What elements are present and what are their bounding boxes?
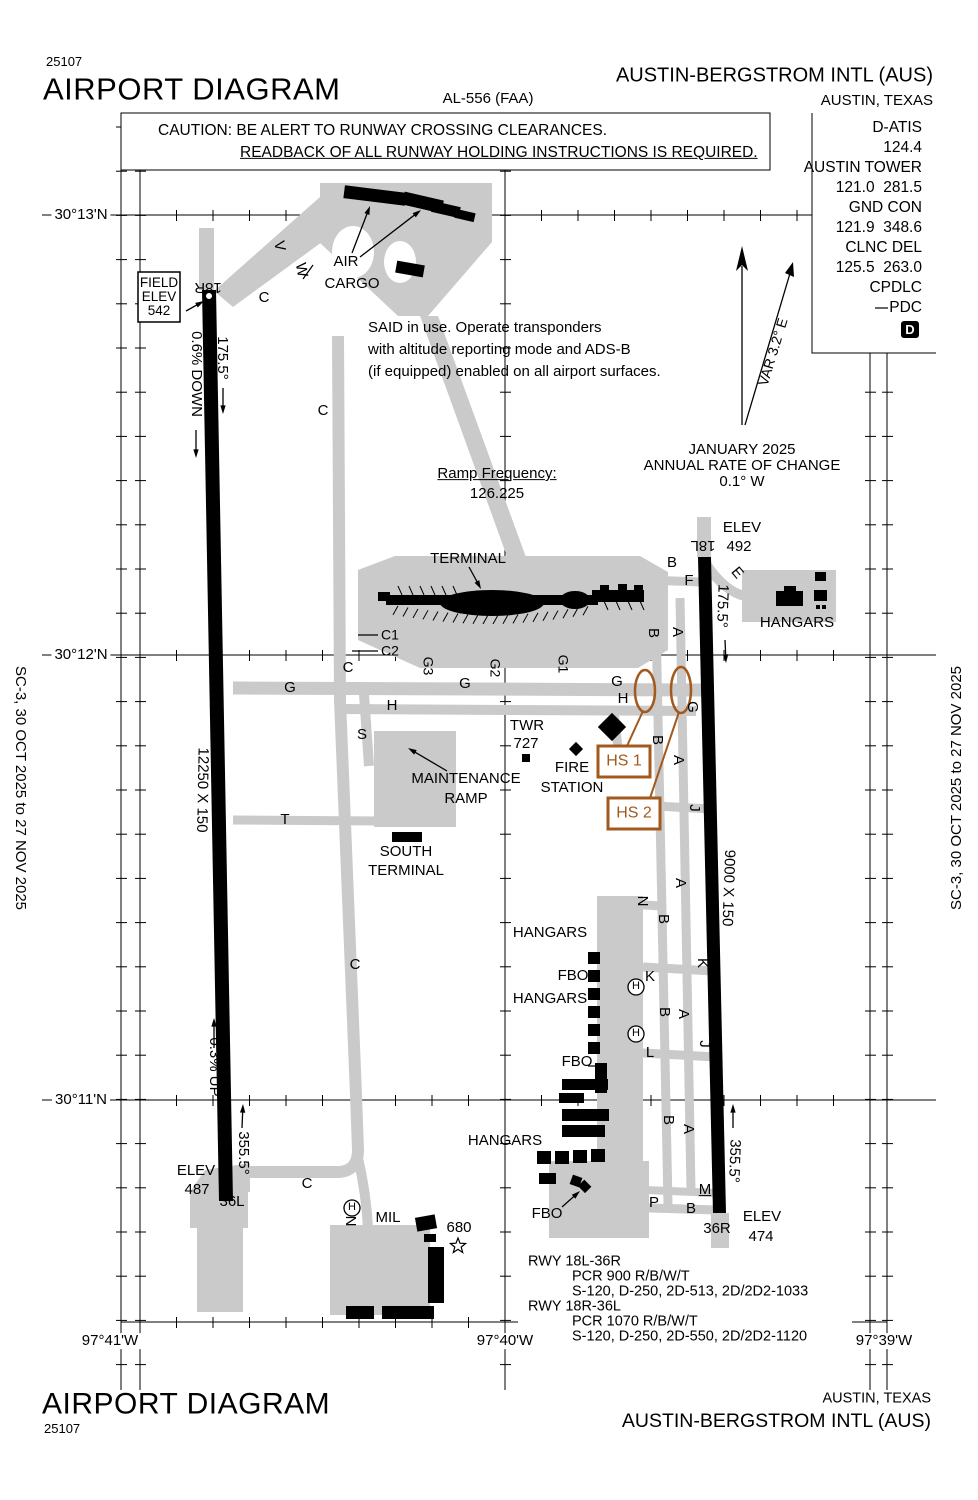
taxiway-label-c-2: C <box>318 403 329 419</box>
runway-info-line-3: RWY 18R-36L <box>528 1299 621 1314</box>
taxiway-label-p: P <box>649 1195 659 1211</box>
taxiway-label-j-2: J <box>696 1040 712 1048</box>
hdg-label-355-5-east: 355.5° <box>725 1139 742 1183</box>
frequency-line-7: 125.5 263.0 <box>836 260 922 276</box>
frequency-line-2: AUSTIN TOWER <box>804 160 922 176</box>
taxiway-label-c1: C1 <box>381 628 399 643</box>
airport-diagram-page: 25107 AIRPORT DIAGRAM AL-556 (FAA) AUSTI… <box>0 0 978 1500</box>
frequency-line-3: 121.0 281.5 <box>836 180 922 196</box>
terminal-label: TERMINAL <box>430 551 506 567</box>
elev-18l-line-1: ELEV <box>723 520 761 536</box>
taxiway-label-g-2: G <box>459 676 471 692</box>
city-state-top: AUSTIN, TEXAS <box>821 93 933 109</box>
taxiway-label-g-1: G <box>284 680 296 696</box>
page-title: AIRPORT DIAGRAM <box>43 74 340 107</box>
slope-label-06-down: 0.6% DOWN <box>188 331 204 417</box>
taxiway-label-g-4: G <box>684 701 700 713</box>
rwy-dim-18l-36r: 9000 X 150 <box>719 849 737 926</box>
hotspot-1-label: HS 1 <box>606 754 642 771</box>
taxiway-label-k-2: K <box>645 969 655 985</box>
taxiway-label-s: S <box>357 727 367 743</box>
taxiway-label-n-1: N <box>634 896 650 907</box>
taxiway-label-c2: C2 <box>381 644 399 659</box>
said-note-line-1: SAID in use. Operate transponders <box>368 320 601 336</box>
pdc-d-letter: D <box>905 323 914 337</box>
hangars-east-label-2: HANGARS <box>513 991 587 1007</box>
lon-label-97-40w: 97°40'W <box>474 1333 536 1349</box>
mil-label: MIL <box>375 1210 400 1226</box>
frequency-line-6: CLNC DEL <box>845 240 922 256</box>
taxiway-label-f: F <box>684 573 693 589</box>
elev-18l-line-2: 492 <box>726 539 751 555</box>
rwy-dim-18r-36l: 12250 X 150 <box>193 747 210 832</box>
rwy-end-18r: 18R <box>194 279 222 295</box>
fire-station-line-2: STATION <box>541 780 604 796</box>
runway-info-line-4: PCR 1070 R/B/W/T <box>572 1314 698 1329</box>
frequency-line-0: D-ATIS <box>872 120 922 136</box>
taxiway-label-h-2: H <box>618 691 629 707</box>
taxiway-label-k-1: K <box>694 958 710 968</box>
lat-label-30-12n: 30°12'N <box>51 647 110 663</box>
air-cargo-line-2: CARGO <box>324 276 379 292</box>
taxiway-label-c-5: C <box>302 1176 313 1192</box>
frequency-line-4: GND CON <box>849 200 922 216</box>
taxiway-label-a-2: A <box>670 755 686 765</box>
caution-line-1: CAUTION: BE ALERT TO RUNWAY CROSSING CLE… <box>158 123 607 139</box>
rwy-end-36r: 36R <box>703 1221 731 1237</box>
taxiway-label-b-1: B <box>667 555 677 571</box>
taxiway-label-h-1: H <box>387 698 398 714</box>
fbo-label-3: FBO <box>532 1206 563 1222</box>
annual-change-line-2: ANNUAL RATE OF CHANGE <box>644 458 841 474</box>
taxiway-label-a-5: A <box>680 1124 696 1134</box>
said-note-line-3: (if equipped) enabled on all airport sur… <box>368 364 661 380</box>
annual-change-line-1: JANUARY 2025 <box>688 442 795 458</box>
hangars-east-label-1: HANGARS <box>513 925 587 941</box>
said-note-line-2: with altitude reporting mode and ADS-B <box>368 342 631 358</box>
ramp-frequency-label: Ramp Frequency: <box>437 466 556 482</box>
lon-label-97-41w: 97°41'W <box>79 1333 141 1349</box>
fbo-label-2: FBO <box>562 1054 593 1070</box>
hangars-south-label: HANGARS <box>468 1133 542 1149</box>
taxiway-label-g-3: G <box>611 674 623 690</box>
taxiway-label-b-3: B <box>649 735 665 745</box>
fbo-label-1: FBO <box>558 968 589 984</box>
airport-name-top: AUSTIN-BERGSTROM INTL (AUS) <box>616 66 933 87</box>
hdg-label-355-5-west: 355.5° <box>235 1131 251 1175</box>
annual-change-line-3: 0.1° W <box>719 474 764 490</box>
lat-label-30-11n: 30°11'N <box>52 1092 110 1108</box>
maintenance-ramp-line-1: MAINTENANCE <box>411 771 520 787</box>
chart-number-bottom: 25107 <box>44 1422 80 1436</box>
elev-36l-line-1: ELEV <box>177 1163 215 1179</box>
taxiway-label-a-4: A <box>675 1009 691 1019</box>
airport-map-graphics <box>0 0 978 1500</box>
elev-36r-line-2: 474 <box>748 1229 773 1245</box>
procedure-id: AL-556 (FAA) <box>443 91 534 107</box>
taxiway-label-n-2: N <box>342 1216 358 1227</box>
frequency-line-5: 121.9 348.6 <box>836 220 922 236</box>
taxiway-label-j-1: J <box>686 804 702 812</box>
elev-36r-line-1: ELEV <box>743 1209 781 1225</box>
page-title-bottom: AIRPORT DIAGRAM <box>42 1388 330 1420</box>
frequency-line-8: CPDLC <box>869 280 922 296</box>
taxiway-label-g3: G3 <box>421 657 436 676</box>
airport-name-bottom: AUSTIN-BERGSTROM INTL (AUS) <box>622 1411 931 1431</box>
field-elev-line-3: 542 <box>148 304 171 318</box>
south-terminal-line-2: TERMINAL <box>368 863 444 879</box>
taxiway-label-c-1: C <box>259 290 270 306</box>
chart-number-top: 25107 <box>46 55 82 69</box>
taxiway-label-t: T <box>280 812 289 828</box>
lon-label-97-39w: 97°39'W <box>853 1333 915 1349</box>
taxiway-label-b-6: B <box>660 1115 676 1125</box>
taxiway-label-g2: G2 <box>488 659 503 678</box>
slope-label-03-up: 0.3% UP <box>206 1037 222 1096</box>
hangars-ne-label: HANGARS <box>760 615 834 631</box>
helipad-h-1: H <box>348 1202 356 1214</box>
runway-info-line-2: S-120, D-250, 2D-513, 2D/2D2-1033 <box>572 1284 808 1299</box>
taxiway-label-b-5: B <box>656 1007 672 1017</box>
hdg-label-175-5-west: 175.5° <box>214 336 230 380</box>
taxiway-label-c-4: C <box>350 957 361 973</box>
taxiway-label-g1: G1 <box>556 655 571 674</box>
lat-label-30-13n: 30°13'N <box>51 207 110 223</box>
twr-elev: 727 <box>513 736 538 752</box>
taxiway-label-m: M <box>699 1182 712 1198</box>
taxiway-label-a-3: A <box>672 878 688 888</box>
frequency-line-1: 124.4 <box>883 140 922 156</box>
helipad-h-2: H <box>632 981 640 993</box>
fire-station-line-1: FIRE <box>555 760 589 776</box>
hotspot-2-label: HS 2 <box>616 806 652 823</box>
runway-info-line-5: S-120, D-250, 2D-550, 2D/2D2-1120 <box>572 1329 807 1344</box>
twr-label: TWR <box>510 718 544 734</box>
city-state-bottom: AUSTIN, TEXAS <box>822 1391 931 1406</box>
helipad-h-3: H <box>632 1028 640 1040</box>
beacon-elev: 680 <box>446 1220 471 1236</box>
taxiway-label-b-4: B <box>655 914 671 924</box>
taxiway-label-w: W <box>292 262 310 279</box>
taxiway-label-l: L <box>646 1045 654 1061</box>
air-cargo-line-1: AIR <box>333 254 358 270</box>
edition-note-left: SC-3, 30 OCT 2025 to 27 NOV 2025 <box>12 666 28 910</box>
frequency-line-9: PDC <box>889 300 922 316</box>
taxiway-label-b-7: B <box>686 1201 696 1217</box>
elev-36l-line-2: 487 <box>184 1182 209 1198</box>
runway-info-line-1: PCR 900 R/B/W/T <box>572 1269 690 1284</box>
caution-line-2: READBACK OF ALL RUNWAY HOLDING INSTRUCTI… <box>240 145 758 161</box>
rwy-end-18l: 18L <box>690 537 715 553</box>
taxiway-label-a-1: A <box>669 627 685 637</box>
taxiway-label-c-3: C <box>343 660 354 676</box>
ramp-frequency-value: 126.225 <box>470 486 524 502</box>
runway-info-line-0: RWY 18L-36R <box>528 1254 621 1269</box>
taxiway-label-b-2: B <box>645 628 661 638</box>
hdg-label-175-5-east: 175.5° <box>713 584 730 628</box>
south-terminal-line-1: SOUTH <box>380 844 433 860</box>
maintenance-ramp-line-2: RAMP <box>444 791 487 807</box>
edition-note-right: SC-3, 30 OCT 2025 to 27 NOV 2025 <box>949 666 965 910</box>
rwy-end-36l: 36L <box>219 1194 244 1210</box>
beacon-star-icon <box>450 1238 465 1253</box>
